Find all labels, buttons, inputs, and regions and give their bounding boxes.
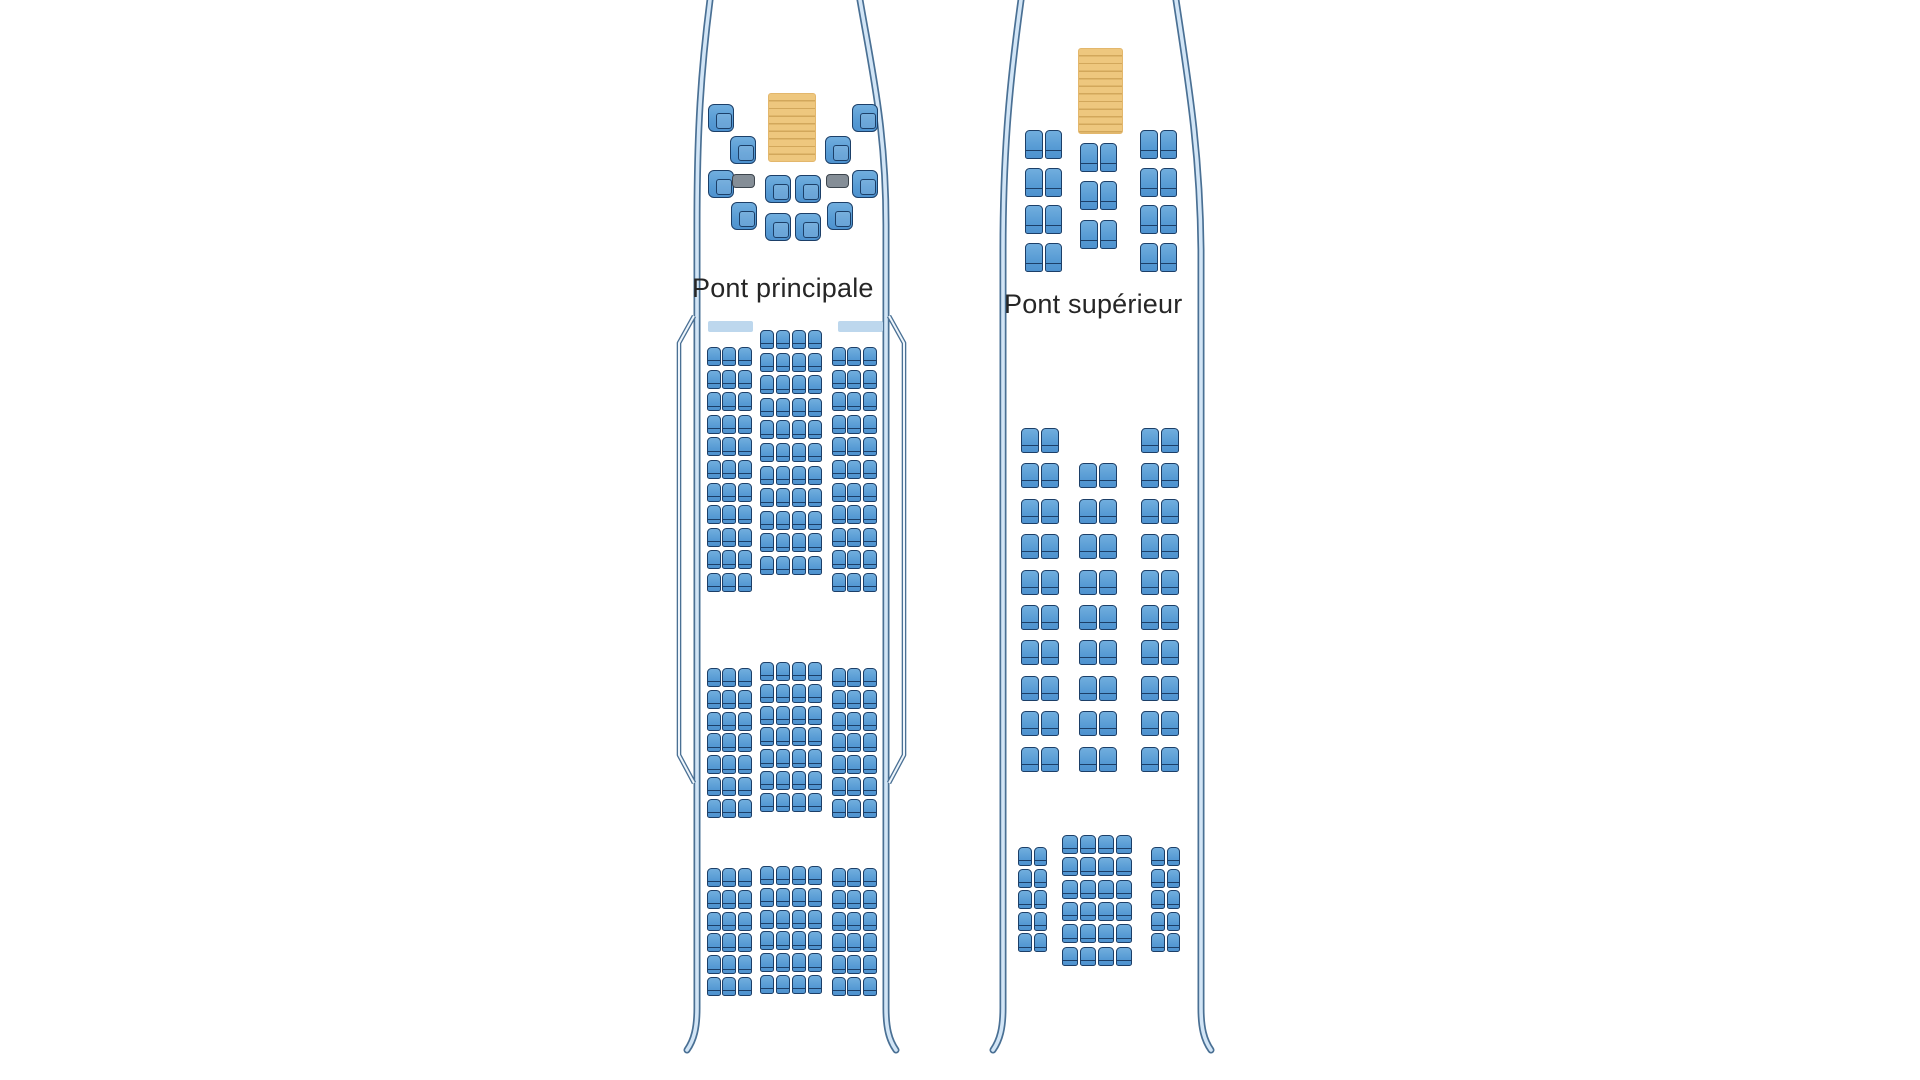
seat-economy[interactable] [738, 347, 752, 366]
seat-economy[interactable] [776, 975, 790, 994]
seat-economy[interactable] [832, 755, 846, 774]
seat-premium[interactable] [1099, 640, 1117, 665]
seat-premium[interactable] [1021, 463, 1039, 488]
seat-economy[interactable] [722, 733, 736, 752]
seat-premium[interactable] [1141, 534, 1159, 559]
seat-economy[interactable] [863, 668, 877, 687]
seat-premium[interactable] [1041, 499, 1059, 524]
seat-premium[interactable] [1079, 605, 1097, 630]
seat-premium[interactable] [1099, 711, 1117, 736]
seat-first-class[interactable] [765, 213, 791, 241]
seat-economy[interactable] [1098, 835, 1114, 854]
seat-business[interactable] [1140, 130, 1158, 159]
seat-premium[interactable] [1141, 676, 1159, 701]
seat-first-class[interactable] [708, 104, 734, 132]
seat-premium[interactable] [1041, 676, 1059, 701]
seat-economy[interactable] [847, 777, 861, 796]
seat-economy[interactable] [760, 706, 774, 725]
seat-economy[interactable] [792, 398, 806, 417]
seat-economy[interactable] [1116, 947, 1132, 966]
seat-economy[interactable] [1151, 933, 1165, 952]
seat-economy[interactable] [847, 505, 861, 524]
seat-economy[interactable] [1151, 869, 1165, 888]
seat-premium[interactable] [1161, 463, 1179, 488]
seat-economy[interactable] [832, 668, 846, 687]
seat-economy[interactable] [792, 488, 806, 507]
seat-first-class[interactable] [708, 170, 734, 198]
seat-economy[interactable] [760, 398, 774, 417]
seat-premium[interactable] [1141, 605, 1159, 630]
seat-economy[interactable] [808, 684, 822, 703]
seat-premium[interactable] [1021, 676, 1039, 701]
seat-economy[interactable] [863, 755, 877, 774]
seat-economy[interactable] [832, 573, 846, 592]
seat-economy[interactable] [707, 415, 721, 434]
seat-economy[interactable] [760, 443, 774, 462]
seat-economy[interactable] [1080, 857, 1096, 876]
seat-economy[interactable] [722, 690, 736, 709]
seat-economy[interactable] [832, 890, 846, 909]
seat-economy[interactable] [722, 437, 736, 456]
seat-economy[interactable] [707, 777, 721, 796]
seat-economy[interactable] [738, 668, 752, 687]
seat-economy[interactable] [760, 353, 774, 372]
seat-economy[interactable] [792, 706, 806, 725]
seat-economy[interactable] [1034, 890, 1048, 909]
seat-business[interactable] [1100, 220, 1118, 249]
seat-economy[interactable] [863, 690, 877, 709]
seat-economy[interactable] [760, 511, 774, 530]
seat-economy[interactable] [738, 755, 752, 774]
seat-economy[interactable] [847, 890, 861, 909]
seat-business[interactable] [1025, 130, 1043, 159]
seat-economy[interactable] [776, 330, 790, 349]
seat-economy[interactable] [738, 528, 752, 547]
seat-economy[interactable] [707, 483, 721, 502]
seat-economy[interactable] [808, 706, 822, 725]
seat-economy[interactable] [863, 415, 877, 434]
seat-economy[interactable] [792, 749, 806, 768]
seat-economy[interactable] [1018, 847, 1032, 866]
seat-economy[interactable] [832, 712, 846, 731]
seat-business[interactable] [1160, 168, 1178, 197]
seat-premium[interactable] [1041, 640, 1059, 665]
seat-economy[interactable] [707, 528, 721, 547]
seat-economy[interactable] [1167, 912, 1181, 931]
seat-economy[interactable] [847, 755, 861, 774]
seat-economy[interactable] [808, 931, 822, 950]
seat-economy[interactable] [832, 392, 846, 411]
seat-premium[interactable] [1041, 570, 1059, 595]
seat-economy[interactable] [707, 668, 721, 687]
seat-economy[interactable] [1080, 902, 1096, 921]
seat-economy[interactable] [1062, 835, 1078, 854]
seat-economy[interactable] [1018, 933, 1032, 952]
seat-economy[interactable] [722, 370, 736, 389]
seat-economy[interactable] [1116, 857, 1132, 876]
seat-economy[interactable] [1034, 933, 1048, 952]
seat-economy[interactable] [832, 460, 846, 479]
seat-economy[interactable] [722, 977, 736, 996]
seat-premium[interactable] [1099, 747, 1117, 772]
seat-economy[interactable] [1151, 890, 1165, 909]
seat-economy[interactable] [792, 684, 806, 703]
seat-first-class[interactable] [765, 175, 791, 203]
seat-economy[interactable] [1018, 890, 1032, 909]
seat-economy[interactable] [1080, 947, 1096, 966]
seat-economy[interactable] [738, 370, 752, 389]
seat-economy[interactable] [738, 690, 752, 709]
seat-economy[interactable] [722, 868, 736, 887]
seat-economy[interactable] [792, 353, 806, 372]
seat-economy[interactable] [722, 573, 736, 592]
seat-economy[interactable] [738, 733, 752, 752]
seat-economy[interactable] [707, 733, 721, 752]
seat-economy[interactable] [847, 733, 861, 752]
seat-economy[interactable] [760, 488, 774, 507]
seat-economy[interactable] [760, 556, 774, 575]
seat-economy[interactable] [863, 890, 877, 909]
seat-economy[interactable] [832, 868, 846, 887]
seat-premium[interactable] [1141, 428, 1159, 453]
seat-premium[interactable] [1099, 499, 1117, 524]
seat-premium[interactable] [1141, 711, 1159, 736]
seat-economy[interactable] [1062, 924, 1078, 943]
seat-business[interactable] [1100, 181, 1118, 210]
seat-economy[interactable] [776, 910, 790, 929]
seat-economy[interactable] [792, 888, 806, 907]
seat-premium[interactable] [1079, 747, 1097, 772]
seat-economy[interactable] [808, 330, 822, 349]
seat-economy[interactable] [847, 437, 861, 456]
seat-economy[interactable] [707, 690, 721, 709]
seat-economy[interactable] [832, 370, 846, 389]
seat-economy[interactable] [1116, 924, 1132, 943]
seat-premium[interactable] [1041, 463, 1059, 488]
seat-economy[interactable] [738, 799, 752, 818]
seat-economy[interactable] [776, 420, 790, 439]
seat-economy[interactable] [808, 749, 822, 768]
seat-economy[interactable] [738, 460, 752, 479]
seat-economy[interactable] [722, 799, 736, 818]
seat-economy[interactable] [863, 528, 877, 547]
seat-economy[interactable] [847, 668, 861, 687]
seat-economy[interactable] [760, 727, 774, 746]
seat-premium[interactable] [1161, 534, 1179, 559]
seat-business[interactable] [1080, 181, 1098, 210]
seat-economy[interactable] [847, 483, 861, 502]
seat-economy[interactable] [832, 550, 846, 569]
seat-economy[interactable] [863, 550, 877, 569]
seat-economy[interactable] [863, 712, 877, 731]
seat-economy[interactable] [1098, 924, 1114, 943]
seat-economy[interactable] [776, 888, 790, 907]
seat-economy[interactable] [738, 933, 752, 952]
seat-economy[interactable] [707, 505, 721, 524]
seat-premium[interactable] [1021, 570, 1039, 595]
seat-economy[interactable] [1080, 880, 1096, 899]
seat-economy[interactable] [847, 460, 861, 479]
seat-economy[interactable] [776, 511, 790, 530]
seat-economy[interactable] [738, 550, 752, 569]
seat-economy[interactable] [832, 347, 846, 366]
seat-premium[interactable] [1021, 747, 1039, 772]
seat-economy[interactable] [707, 347, 721, 366]
seat-business[interactable] [1140, 168, 1158, 197]
seat-premium[interactable] [1079, 676, 1097, 701]
seat-premium[interactable] [1099, 534, 1117, 559]
seat-economy[interactable] [722, 392, 736, 411]
seat-premium[interactable] [1079, 711, 1097, 736]
seat-economy[interactable] [808, 771, 822, 790]
seat-first-class[interactable] [852, 170, 878, 198]
seat-economy[interactable] [738, 415, 752, 434]
seat-economy[interactable] [863, 392, 877, 411]
seat-premium[interactable] [1099, 676, 1117, 701]
seat-business[interactable] [1045, 243, 1063, 272]
seat-economy[interactable] [1034, 847, 1048, 866]
seat-economy[interactable] [776, 684, 790, 703]
seat-economy[interactable] [738, 483, 752, 502]
seat-economy[interactable] [847, 550, 861, 569]
seat-premium[interactable] [1079, 570, 1097, 595]
seat-economy[interactable] [722, 955, 736, 974]
seat-economy[interactable] [808, 975, 822, 994]
seat-premium[interactable] [1099, 570, 1117, 595]
seat-economy[interactable] [792, 420, 806, 439]
seat-economy[interactable] [832, 505, 846, 524]
seat-business[interactable] [1025, 168, 1043, 197]
seat-economy[interactable] [792, 511, 806, 530]
seat-economy[interactable] [776, 443, 790, 462]
seat-business[interactable] [1045, 130, 1063, 159]
seat-economy[interactable] [722, 550, 736, 569]
seat-economy[interactable] [847, 370, 861, 389]
seat-economy[interactable] [808, 793, 822, 812]
seat-premium[interactable] [1161, 747, 1179, 772]
seat-economy[interactable] [707, 712, 721, 731]
seat-business[interactable] [1160, 130, 1178, 159]
seat-economy[interactable] [707, 868, 721, 887]
seat-economy[interactable] [722, 777, 736, 796]
seat-economy[interactable] [847, 712, 861, 731]
seat-economy[interactable] [707, 550, 721, 569]
seat-premium[interactable] [1099, 605, 1117, 630]
seat-economy[interactable] [847, 912, 861, 931]
seat-economy[interactable] [1098, 880, 1114, 899]
seat-economy[interactable] [760, 975, 774, 994]
seat-economy[interactable] [738, 955, 752, 974]
seat-economy[interactable] [832, 437, 846, 456]
seat-economy[interactable] [776, 533, 790, 552]
seat-economy[interactable] [776, 771, 790, 790]
seat-economy[interactable] [792, 931, 806, 950]
seat-economy[interactable] [722, 668, 736, 687]
seat-economy[interactable] [722, 755, 736, 774]
seat-premium[interactable] [1021, 711, 1039, 736]
seat-economy[interactable] [722, 528, 736, 547]
seat-economy[interactable] [792, 975, 806, 994]
seat-economy[interactable] [776, 466, 790, 485]
seat-economy[interactable] [808, 556, 822, 575]
seat-economy[interactable] [832, 777, 846, 796]
seat-premium[interactable] [1161, 570, 1179, 595]
seat-premium[interactable] [1141, 570, 1159, 595]
seat-premium[interactable] [1079, 640, 1097, 665]
seat-economy[interactable] [863, 733, 877, 752]
seat-economy[interactable] [760, 533, 774, 552]
seat-economy[interactable] [847, 933, 861, 952]
seat-economy[interactable] [863, 955, 877, 974]
seat-premium[interactable] [1079, 499, 1097, 524]
seat-economy[interactable] [776, 375, 790, 394]
seat-economy[interactable] [1151, 847, 1165, 866]
seat-business[interactable] [1160, 205, 1178, 234]
seat-economy[interactable] [847, 690, 861, 709]
seat-first-class[interactable] [731, 202, 757, 230]
seat-premium[interactable] [1041, 428, 1059, 453]
seat-economy[interactable] [760, 888, 774, 907]
seat-economy[interactable] [847, 573, 861, 592]
seat-economy[interactable] [760, 684, 774, 703]
seat-economy[interactable] [847, 799, 861, 818]
seat-economy[interactable] [792, 910, 806, 929]
seat-economy[interactable] [776, 353, 790, 372]
seat-business[interactable] [1080, 220, 1098, 249]
seat-economy[interactable] [1062, 880, 1078, 899]
seat-economy[interactable] [792, 727, 806, 746]
seat-premium[interactable] [1041, 711, 1059, 736]
seat-economy[interactable] [792, 375, 806, 394]
seat-economy[interactable] [1098, 902, 1114, 921]
seat-business[interactable] [1080, 143, 1098, 172]
seat-economy[interactable] [847, 415, 861, 434]
seat-economy[interactable] [707, 955, 721, 974]
seat-economy[interactable] [863, 460, 877, 479]
seat-economy[interactable] [707, 912, 721, 931]
seat-economy[interactable] [722, 912, 736, 931]
seat-economy[interactable] [722, 460, 736, 479]
seat-economy[interactable] [1098, 947, 1114, 966]
seat-economy[interactable] [707, 460, 721, 479]
seat-economy[interactable] [707, 573, 721, 592]
seat-premium[interactable] [1021, 534, 1039, 559]
seat-economy[interactable] [776, 749, 790, 768]
seat-economy[interactable] [863, 370, 877, 389]
seat-first-class[interactable] [825, 136, 851, 164]
seat-economy[interactable] [832, 799, 846, 818]
seat-economy[interactable] [722, 712, 736, 731]
seat-premium[interactable] [1021, 428, 1039, 453]
seat-economy[interactable] [776, 727, 790, 746]
seat-economy[interactable] [1116, 835, 1132, 854]
seat-economy[interactable] [707, 799, 721, 818]
seat-premium[interactable] [1161, 605, 1179, 630]
seat-economy[interactable] [808, 727, 822, 746]
seat-economy[interactable] [776, 556, 790, 575]
seat-economy[interactable] [760, 749, 774, 768]
seat-economy[interactable] [832, 933, 846, 952]
seat-economy[interactable] [1062, 857, 1078, 876]
seat-economy[interactable] [792, 662, 806, 681]
seat-economy[interactable] [808, 511, 822, 530]
seat-first-class[interactable] [852, 104, 878, 132]
seat-economy[interactable] [760, 330, 774, 349]
seat-economy[interactable] [722, 933, 736, 952]
seat-economy[interactable] [738, 977, 752, 996]
seat-economy[interactable] [738, 437, 752, 456]
seat-economy[interactable] [760, 866, 774, 885]
seat-economy[interactable] [1062, 947, 1078, 966]
seat-economy[interactable] [1080, 924, 1096, 943]
seat-economy[interactable] [792, 953, 806, 972]
seat-economy[interactable] [1062, 902, 1078, 921]
seat-economy[interactable] [847, 955, 861, 974]
seat-economy[interactable] [863, 799, 877, 818]
seat-economy[interactable] [1167, 847, 1181, 866]
seat-premium[interactable] [1161, 676, 1179, 701]
seat-premium[interactable] [1079, 463, 1097, 488]
seat-premium[interactable] [1161, 428, 1179, 453]
seat-economy[interactable] [1018, 869, 1032, 888]
seat-economy[interactable] [808, 866, 822, 885]
seat-economy[interactable] [722, 505, 736, 524]
seat-economy[interactable] [832, 528, 846, 547]
seat-economy[interactable] [760, 931, 774, 950]
seat-economy[interactable] [776, 662, 790, 681]
seat-business[interactable] [1025, 243, 1043, 272]
seat-economy[interactable] [1034, 869, 1048, 888]
seat-economy[interactable] [792, 466, 806, 485]
seat-premium[interactable] [1141, 640, 1159, 665]
seat-business[interactable] [1140, 243, 1158, 272]
seat-economy[interactable] [760, 953, 774, 972]
seat-economy[interactable] [722, 347, 736, 366]
seat-economy[interactable] [808, 533, 822, 552]
seat-premium[interactable] [1021, 605, 1039, 630]
seat-economy[interactable] [1167, 869, 1181, 888]
seat-economy[interactable] [847, 977, 861, 996]
seat-economy[interactable] [863, 777, 877, 796]
seat-economy[interactable] [832, 955, 846, 974]
seat-premium[interactable] [1021, 499, 1039, 524]
seat-economy[interactable] [738, 573, 752, 592]
seat-first-class[interactable] [795, 175, 821, 203]
seat-economy[interactable] [776, 953, 790, 972]
seat-business[interactable] [1045, 205, 1063, 234]
seat-economy[interactable] [863, 347, 877, 366]
seat-premium[interactable] [1041, 605, 1059, 630]
seat-economy[interactable] [707, 392, 721, 411]
seat-business[interactable] [1025, 205, 1043, 234]
seat-economy[interactable] [847, 528, 861, 547]
seat-economy[interactable] [832, 483, 846, 502]
seat-first-class[interactable] [795, 213, 821, 241]
seat-economy[interactable] [722, 483, 736, 502]
seat-economy[interactable] [707, 755, 721, 774]
seat-economy[interactable] [1151, 912, 1165, 931]
seat-economy[interactable] [832, 690, 846, 709]
seat-economy[interactable] [760, 910, 774, 929]
seat-economy[interactable] [722, 890, 736, 909]
seat-economy[interactable] [792, 533, 806, 552]
seat-business[interactable] [1100, 143, 1118, 172]
seat-first-class[interactable] [827, 202, 853, 230]
seat-economy[interactable] [832, 977, 846, 996]
seat-economy[interactable] [808, 466, 822, 485]
seat-economy[interactable] [863, 868, 877, 887]
seat-economy[interactable] [760, 771, 774, 790]
